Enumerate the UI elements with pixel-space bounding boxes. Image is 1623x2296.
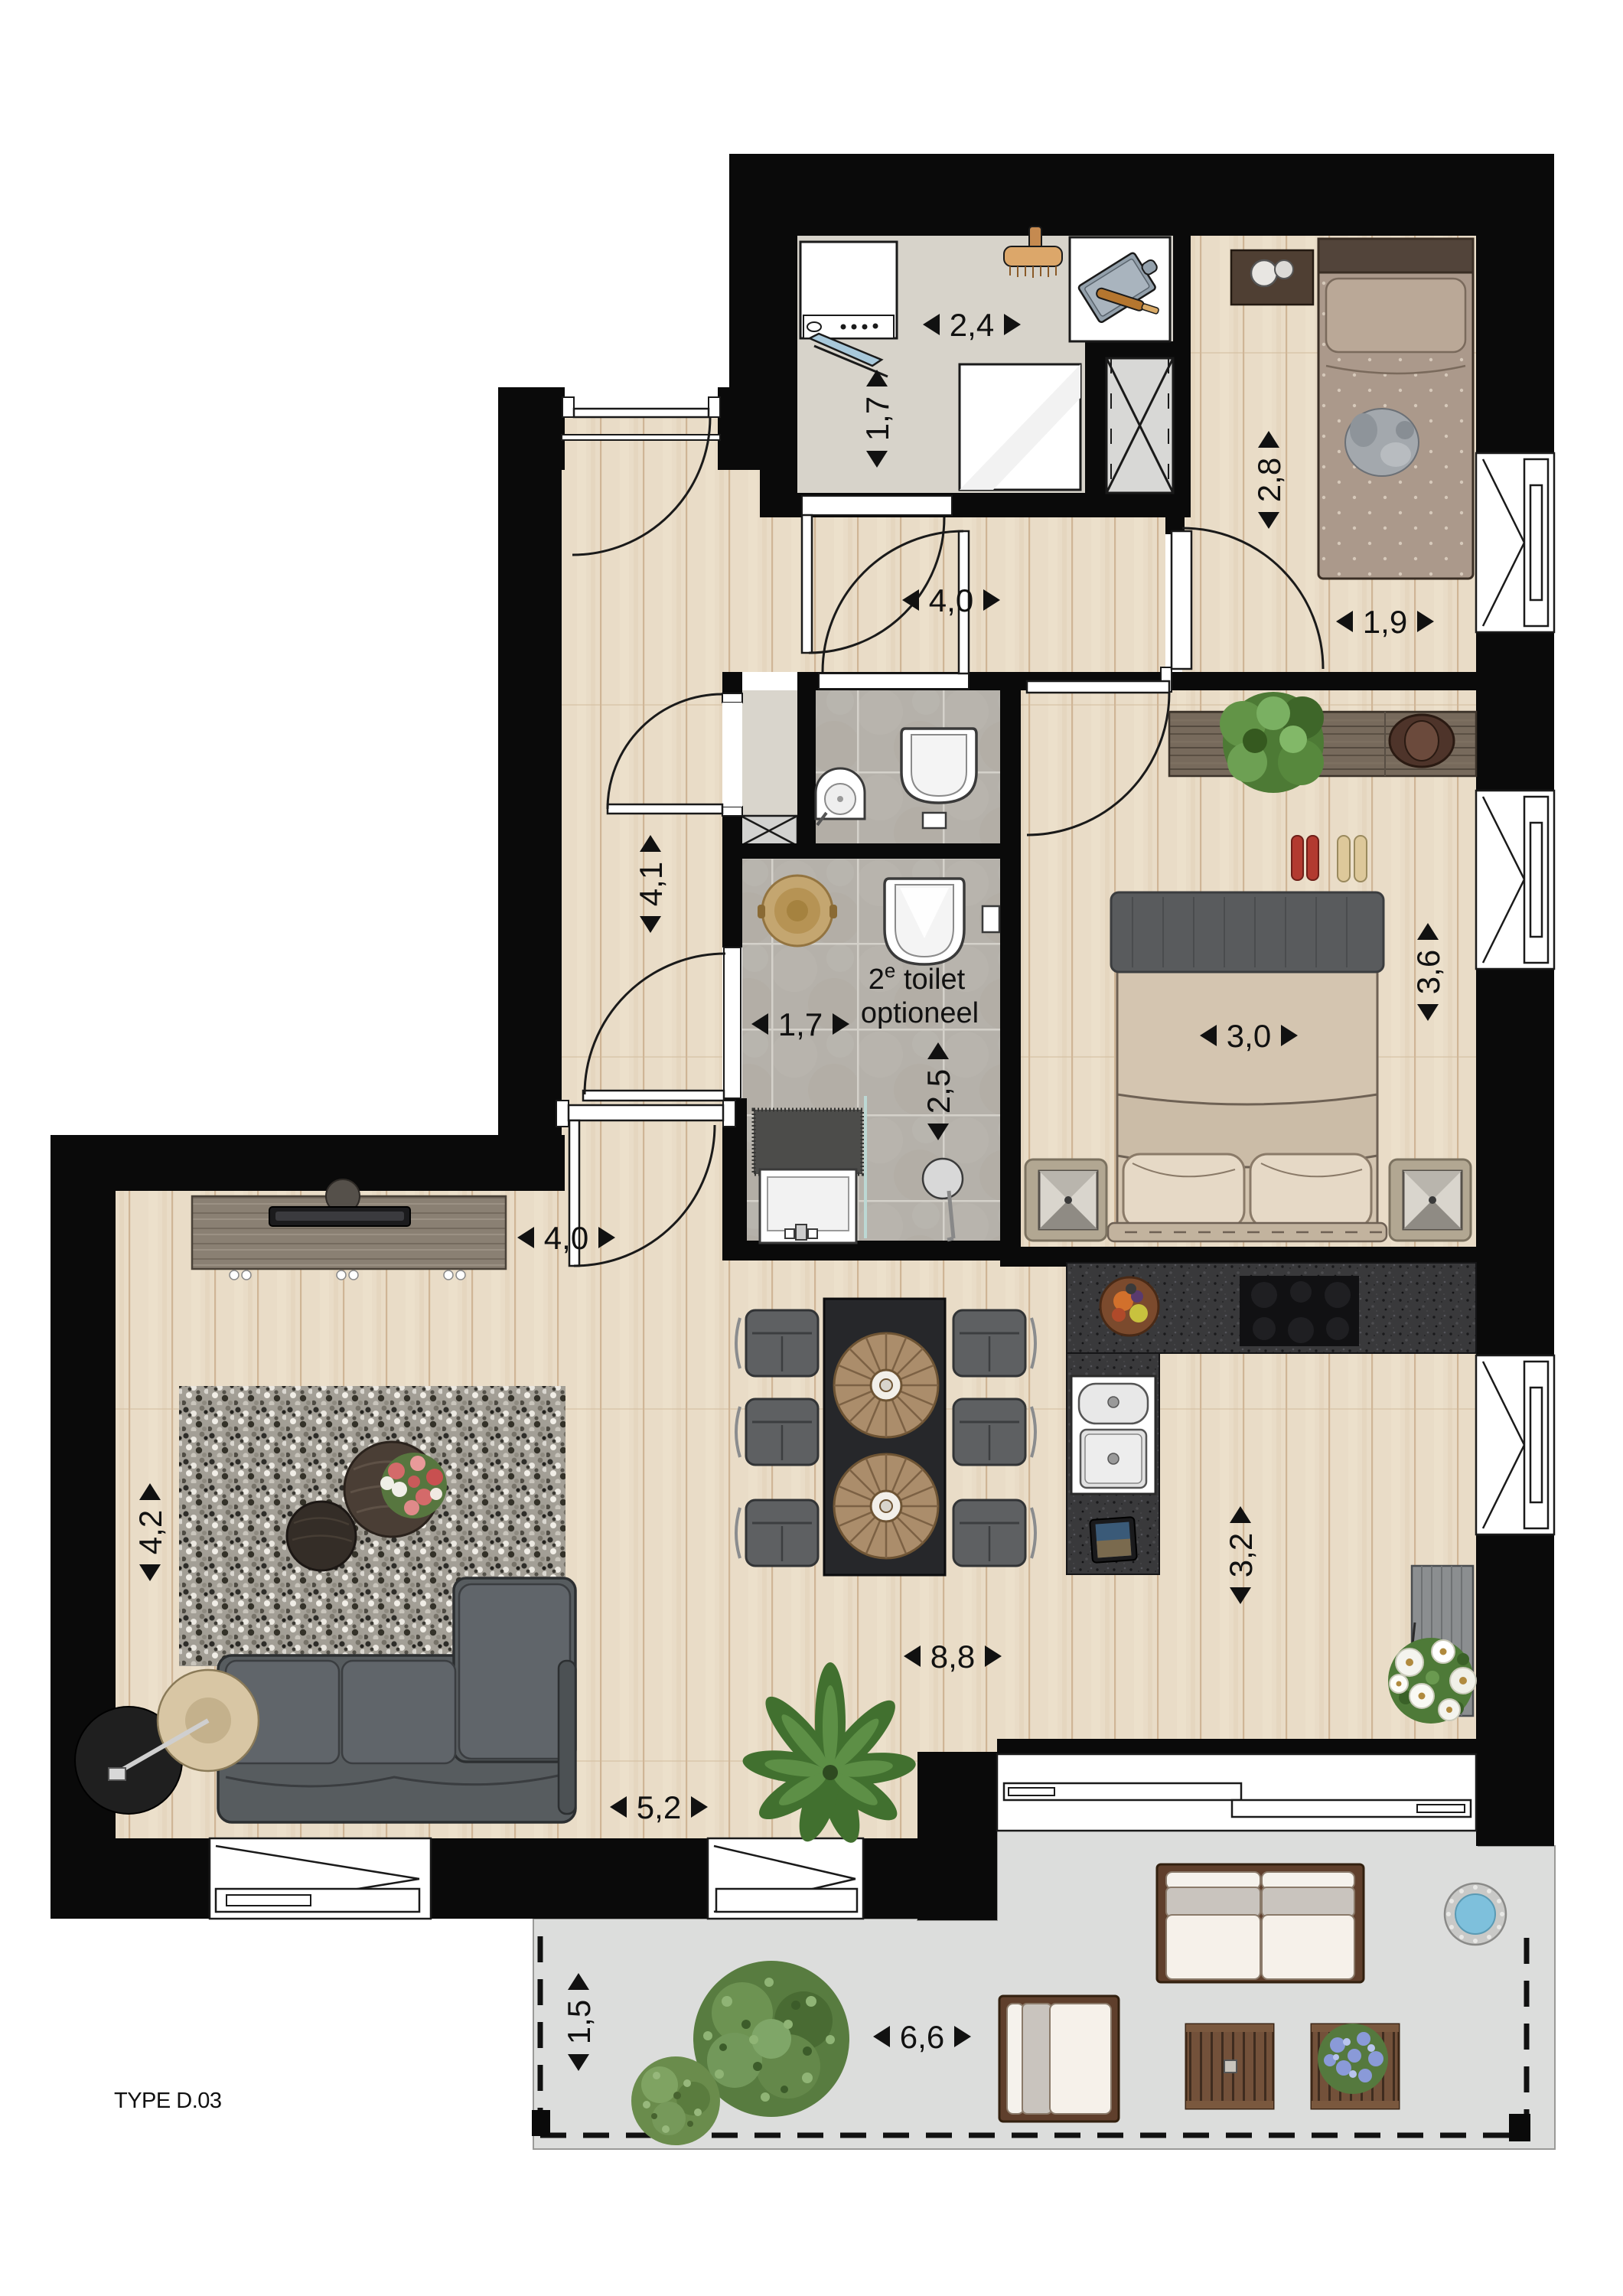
- svg-text:8,8: 8,8: [930, 1639, 975, 1675]
- svg-text:4,0: 4,0: [544, 1220, 588, 1256]
- svg-text:4,0: 4,0: [929, 582, 973, 618]
- svg-text:3,2: 3,2: [1223, 1533, 1259, 1577]
- svg-text:6,6: 6,6: [900, 2019, 944, 2055]
- svg-text:2e toilet: 2e toilet: [869, 959, 966, 996]
- svg-text:2,5: 2,5: [921, 1069, 957, 1114]
- svg-text:2,8: 2,8: [1251, 458, 1287, 502]
- svg-text:1,7: 1,7: [859, 396, 895, 441]
- svg-text:TYPE D.03: TYPE D.03: [114, 2089, 222, 2113]
- svg-text:5,2: 5,2: [637, 1789, 681, 1825]
- svg-text:1,5: 1,5: [561, 2000, 597, 2044]
- svg-text:2,4: 2,4: [950, 307, 994, 343]
- svg-text:3,6: 3,6: [1410, 950, 1446, 994]
- svg-text:optioneel: optioneel: [861, 997, 979, 1029]
- svg-text:3,0: 3,0: [1227, 1018, 1271, 1054]
- svg-text:4,1: 4,1: [633, 862, 669, 906]
- svg-text:1,9: 1,9: [1363, 604, 1407, 640]
- svg-text:1,7: 1,7: [778, 1006, 823, 1042]
- svg-text:4,2: 4,2: [132, 1510, 168, 1554]
